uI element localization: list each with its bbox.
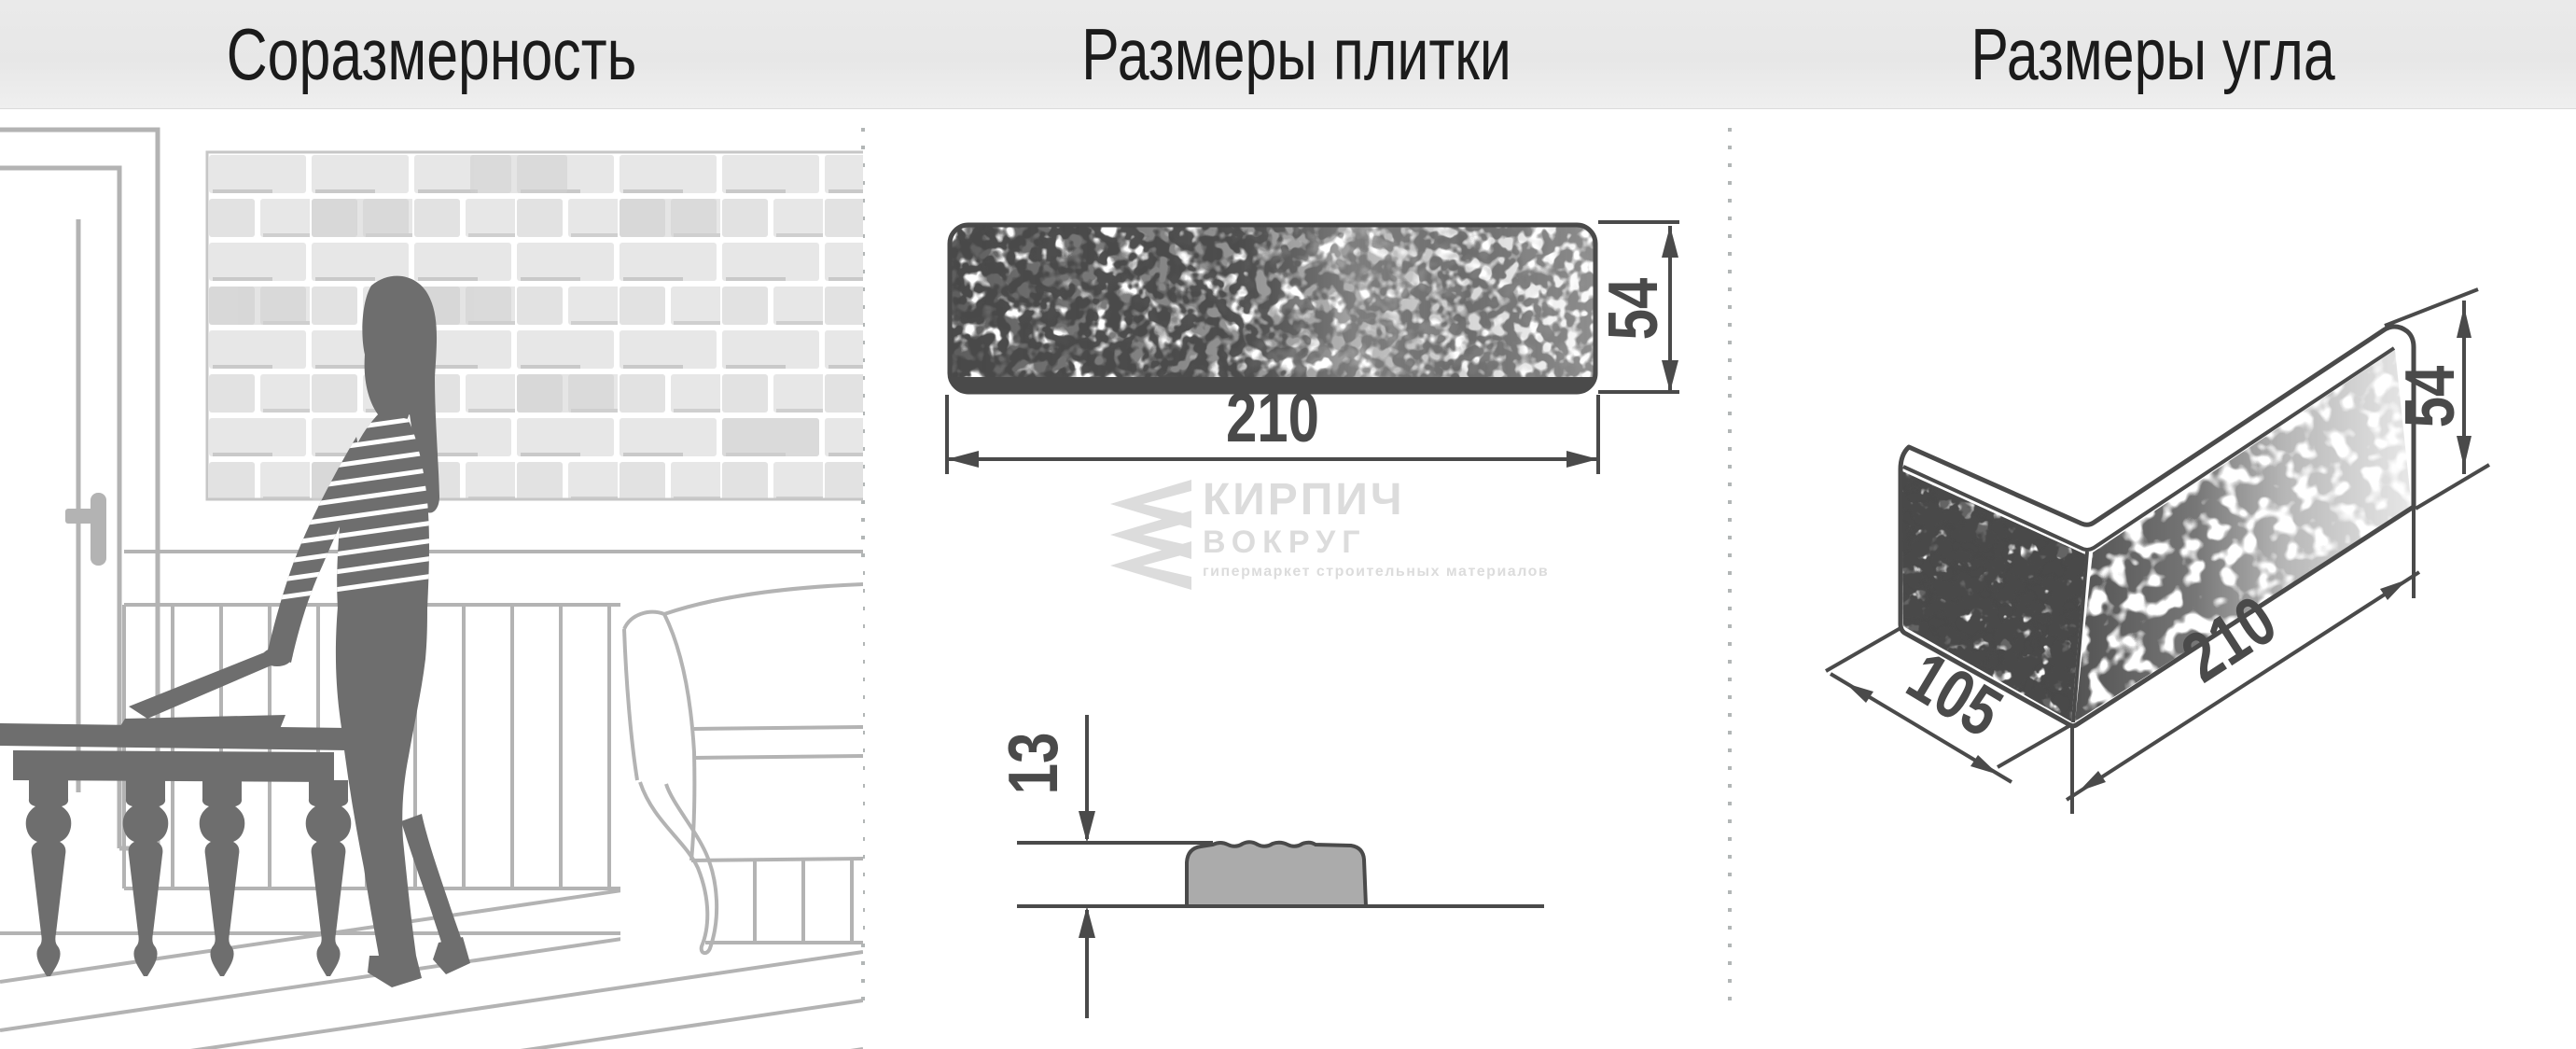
corner-dimensions-drawing: 105 210 54: [0, 0, 2576, 1049]
corner-height-label: 54: [2392, 365, 2470, 427]
page: Соразмерность Размеры плитки Размеры угл…: [0, 0, 2576, 1049]
